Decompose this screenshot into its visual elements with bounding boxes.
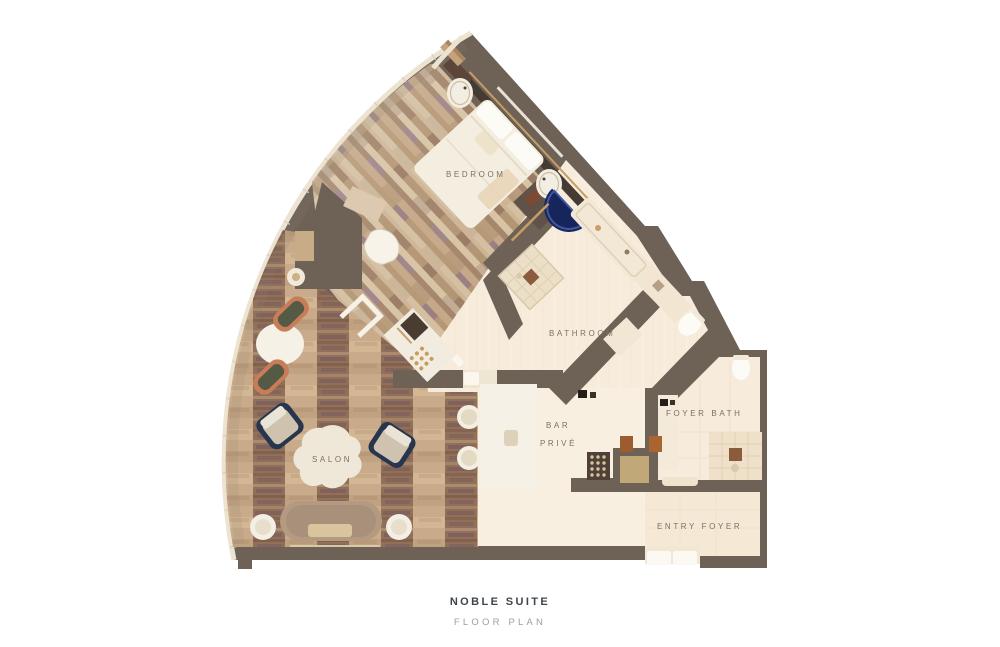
svg-text:PRIVÉ: PRIVÉ	[540, 439, 577, 448]
svg-text:SALON: SALON	[312, 455, 352, 464]
svg-text:BATHROOM: BATHROOM	[549, 329, 615, 338]
svg-text:ENTRY FOYER: ENTRY FOYER	[657, 522, 742, 531]
svg-text:NOBLE SUITE: NOBLE SUITE	[450, 596, 550, 608]
svg-text:BEDROOM: BEDROOM	[446, 170, 506, 179]
svg-text:BAR: BAR	[546, 421, 570, 430]
svg-text:FOYER BATH: FOYER BATH	[666, 409, 743, 418]
svg-text:FLOOR PLAN: FLOOR PLAN	[454, 617, 546, 628]
